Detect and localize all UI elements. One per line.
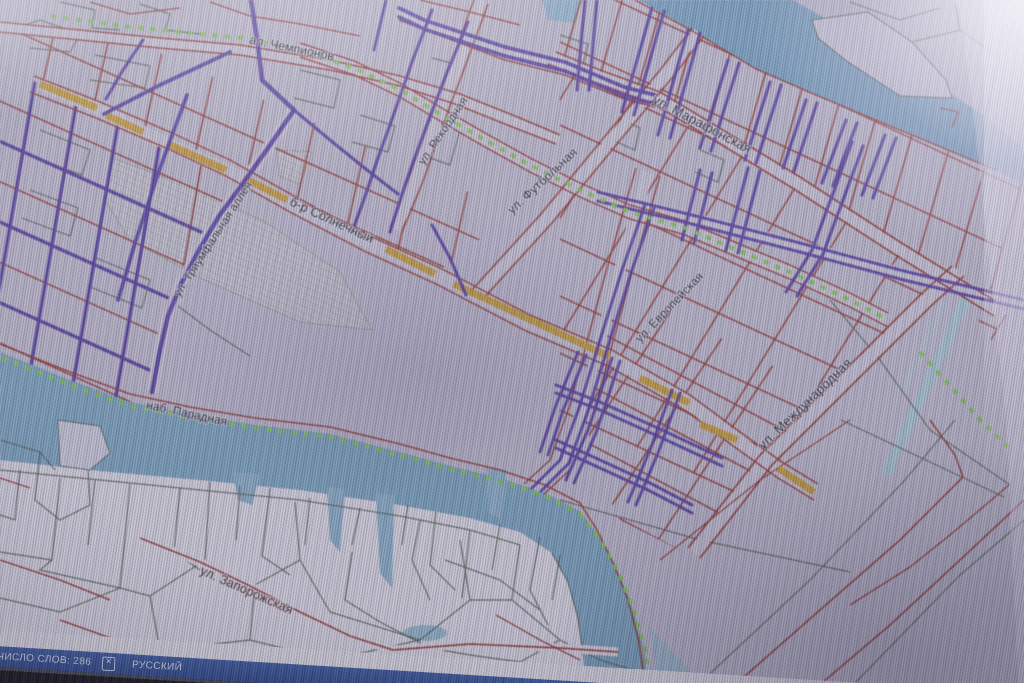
- svg-text:ул. Марафонская: ул. Марафонская: [650, 92, 754, 157]
- svg-text:ул. Европейская: ул. Европейская: [632, 269, 706, 345]
